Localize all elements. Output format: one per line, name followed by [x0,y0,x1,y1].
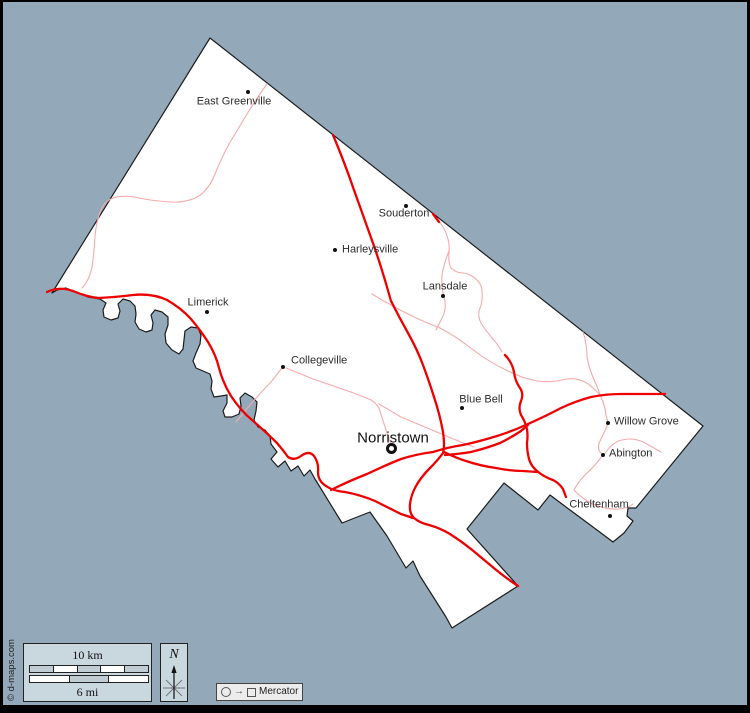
city-label: Souderton [379,209,430,220]
scale-bar-mi [29,675,149,683]
scale-segment [30,666,53,672]
projection-name: Mercator [259,687,298,697]
city-label: Lansdale [423,282,468,293]
map-canvas: East Greenville Souderton Harleysville L… [0,0,750,713]
city-label: Harleysville [342,245,398,256]
scale-panel: 10 km 6 mi [23,643,152,702]
city-dot [606,421,610,425]
projection-legend: → Mercator [216,683,303,701]
city-dot [333,248,337,252]
city-dot [205,310,209,314]
city-label: Limerick [188,298,229,309]
scale-mi-label: 6 mi [24,686,151,698]
scale-bar-km [29,665,149,673]
scale-km-label: 10 km [24,649,151,661]
city-label: Abington [609,449,652,460]
county-map-svg [0,0,750,713]
city-label: Norristown [357,431,429,446]
city-dot [281,365,285,369]
city-dot [460,406,464,410]
circle-icon [221,687,231,697]
scale-segment [100,666,124,672]
scale-segment [124,666,148,672]
arrow-right-icon: → [234,687,244,697]
city-dot [441,294,445,298]
compass-panel: N [160,643,188,702]
city-label: Cheltenham [569,500,628,511]
city-label: East Greenville [197,97,272,108]
watermark: © d-maps.com [6,639,17,701]
square-icon [247,688,256,697]
scale-segment [108,676,148,682]
compass-star-icon [161,663,187,701]
scale-segment [77,666,101,672]
north-label: N [161,648,187,662]
scale-segment [53,666,77,672]
city-dot [608,514,612,518]
city-dot [246,90,250,94]
city-label: Collegeville [291,356,347,367]
scale-segment [30,676,69,682]
city-label: Willow Grove [614,417,679,428]
city-dot [601,453,605,457]
county-shape [52,38,703,628]
city-label: Blue Bell [459,395,502,406]
scale-segment [69,676,109,682]
